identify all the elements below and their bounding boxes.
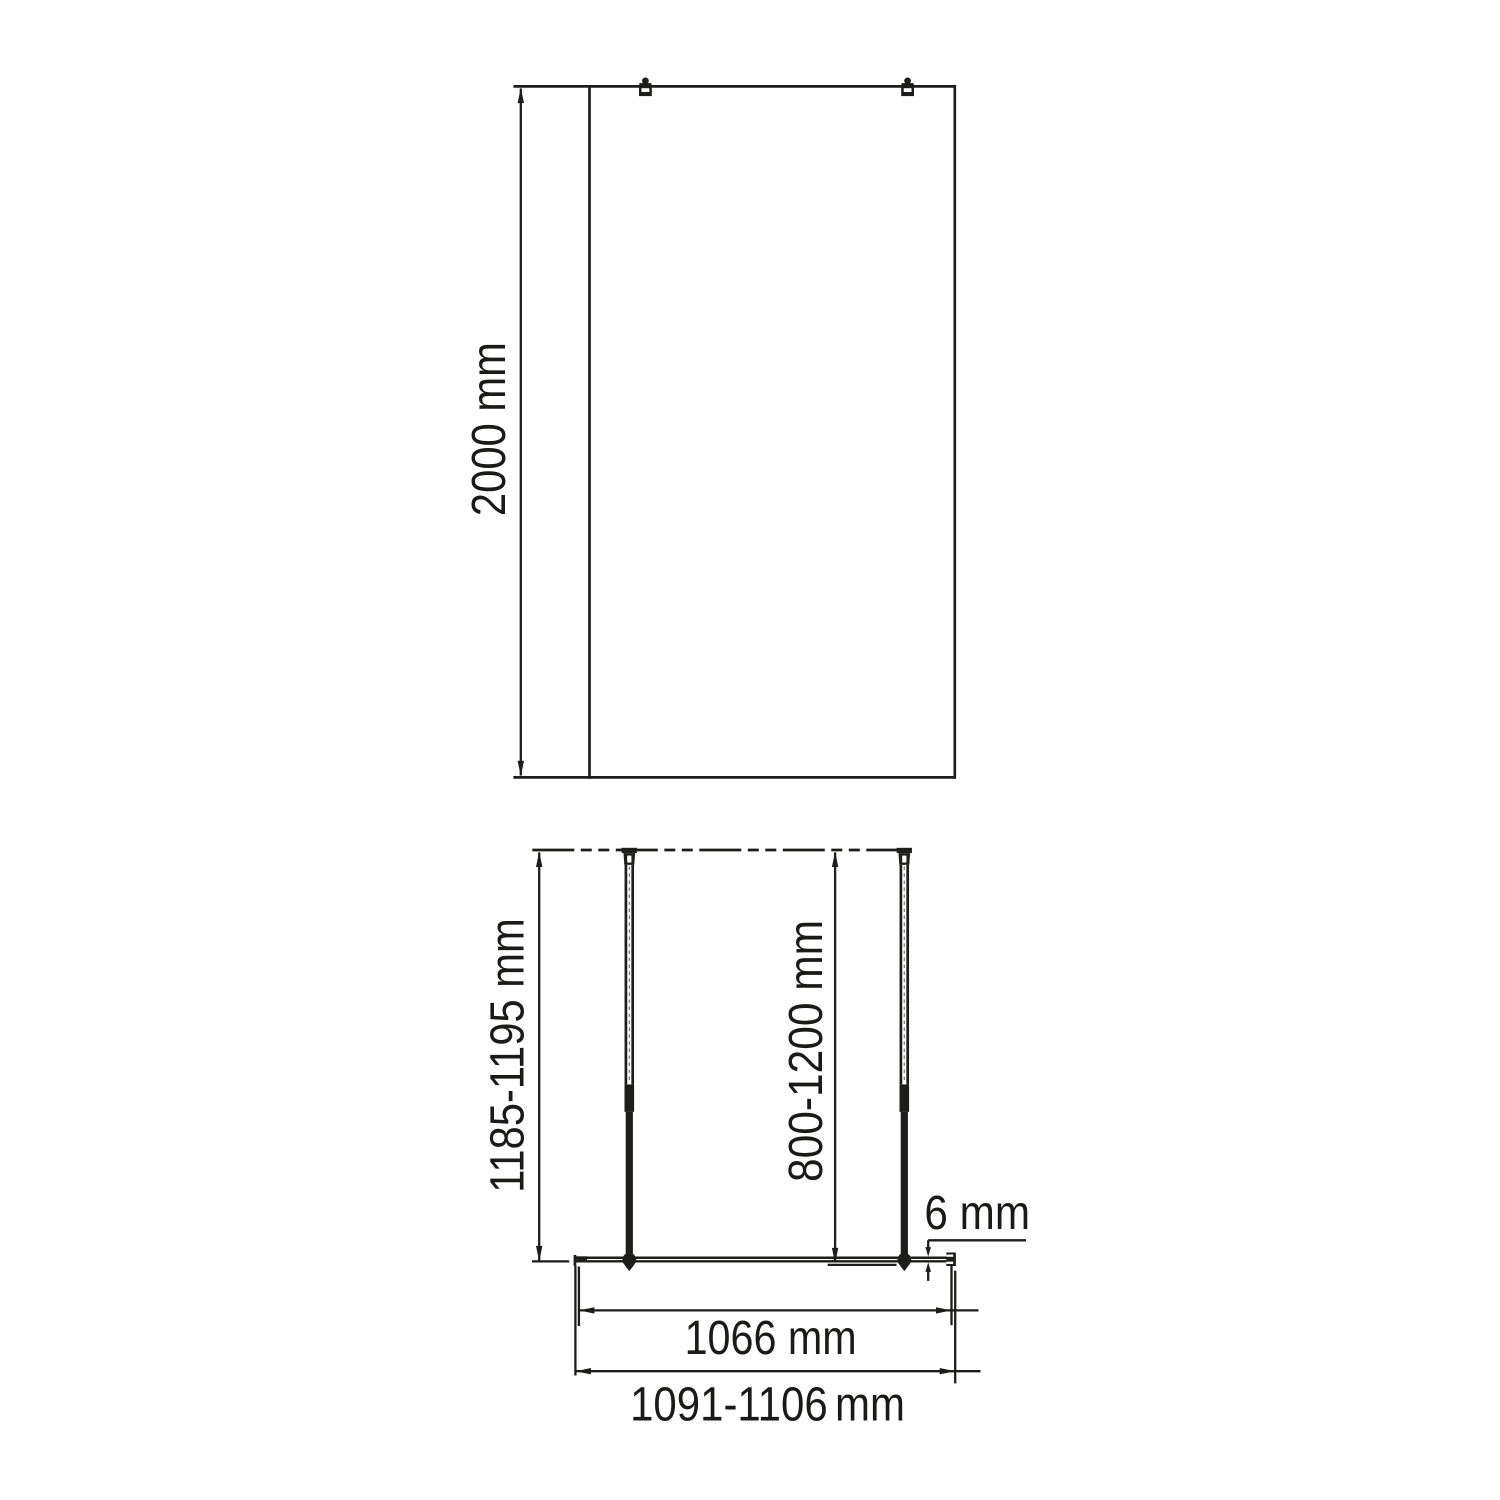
- svg-text:1185-1195 mm: 1185-1195 mm: [480, 918, 534, 1193]
- svg-text:800-1200 mm: 800-1200 mm: [778, 920, 832, 1182]
- svg-text:2000 mm: 2000 mm: [461, 342, 515, 516]
- svg-text:1066 mm: 1066 mm: [685, 1311, 857, 1365]
- svg-text:1091-1106 mm: 1091-1106 mm: [630, 1377, 905, 1431]
- svg-text:6 mm: 6 mm: [924, 1185, 1030, 1239]
